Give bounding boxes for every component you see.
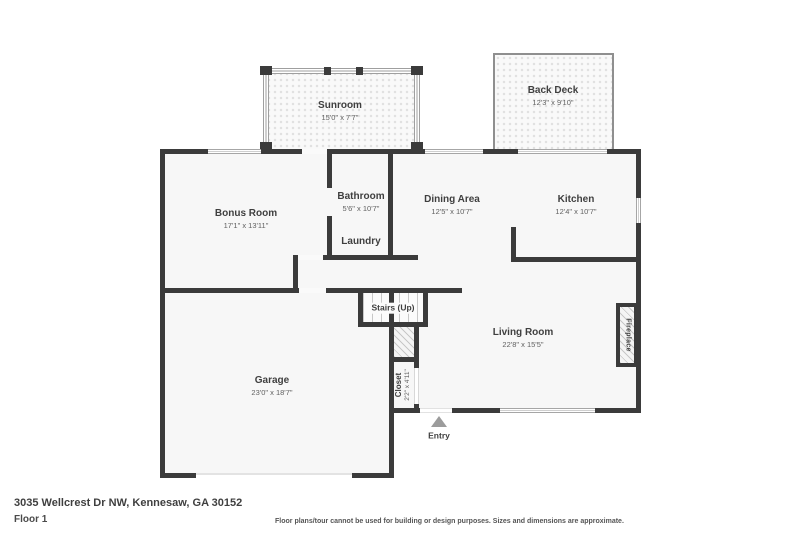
dining-window bbox=[425, 149, 483, 154]
sunroom-mullion-post bbox=[356, 67, 363, 75]
property-address: 3035 Wellcrest Dr NW, Kennesaw, GA 30152 bbox=[14, 497, 242, 509]
room-name: Dining Area bbox=[424, 194, 480, 207]
wall-bathroom-left-lower bbox=[327, 216, 332, 260]
room-dims: 17'1" x 13'11" bbox=[215, 221, 277, 230]
entry-arrow-icon bbox=[431, 416, 447, 427]
wall-bathroom-left-upper bbox=[327, 152, 332, 188]
room-name: Back Deck bbox=[528, 85, 579, 98]
room-dims: 5'6" x 10'7" bbox=[337, 204, 384, 213]
room-dims: 15'0" x 7'7" bbox=[318, 113, 362, 122]
room-label-garage: Garage 23'0" x 18'7" bbox=[251, 375, 292, 397]
sunroom-corner-post bbox=[411, 142, 423, 152]
wall-closet-right-upper bbox=[414, 322, 419, 368]
wall-left bbox=[160, 149, 165, 478]
wall-stairs-right bbox=[423, 293, 428, 327]
room-dims: 12'3" x 9'10" bbox=[528, 98, 579, 107]
room-label-fireplace: Fireplace bbox=[623, 318, 632, 351]
entry-door-opening bbox=[420, 408, 452, 413]
living-room-window bbox=[500, 408, 595, 413]
room-name: Living Room bbox=[493, 327, 554, 340]
room-name: Bonus Room bbox=[215, 208, 277, 221]
room-label-sunroom: Sunroom 15'0" x 7'7" bbox=[318, 100, 362, 122]
room-label-closet: Closet 2'2" x 4'11" bbox=[394, 369, 412, 401]
room-dims: 2'2" x 4'11" bbox=[404, 369, 412, 401]
room-label-laundry: Laundry bbox=[341, 236, 380, 249]
hall-door-opening-upper bbox=[298, 255, 323, 260]
room-name: Stairs (Up) bbox=[370, 303, 417, 314]
sunroom-mullion-post bbox=[324, 67, 331, 75]
room-name: Sunroom bbox=[318, 100, 362, 113]
closet-door-opening bbox=[414, 368, 419, 404]
under-stairs-hatch bbox=[394, 327, 414, 357]
room-label-stairs: Stairs (Up) bbox=[370, 303, 417, 314]
bonus-room-window bbox=[208, 149, 261, 154]
kitchen-window bbox=[636, 198, 641, 223]
deck-patio-door bbox=[518, 149, 607, 154]
hall-door-opening-lower bbox=[299, 288, 326, 293]
floor-plan-canvas: Sunroom 15'0" x 7'7" Back Deck 12'3" x 9… bbox=[0, 0, 800, 533]
room-dims: 23'0" x 18'7" bbox=[251, 388, 292, 397]
sunroom-corner-post bbox=[260, 142, 272, 152]
room-name: Kitchen bbox=[555, 194, 596, 207]
disclaimer-text: Floor plans/tour cannot be used for buil… bbox=[275, 518, 624, 525]
garage-floor-fill bbox=[160, 413, 394, 478]
sunroom-window-wall-right bbox=[414, 68, 420, 152]
wall-closet-right-lower bbox=[414, 404, 419, 413]
room-name: Entry bbox=[428, 431, 450, 442]
room-dims: 12'5" x 10'7" bbox=[424, 207, 480, 216]
sunroom-corner-post bbox=[260, 66, 272, 75]
room-name: Closet bbox=[394, 369, 404, 401]
room-dims: 22'8" x 15'5" bbox=[493, 340, 554, 349]
room-label-dining-area: Dining Area 12'5" x 10'7" bbox=[424, 194, 480, 216]
room-label-back-deck: Back Deck 12'3" x 9'10" bbox=[528, 85, 579, 107]
wall-laundry-bottom bbox=[323, 255, 418, 260]
wall-garage-top-right bbox=[326, 288, 462, 293]
room-label-entry: Entry bbox=[428, 431, 450, 442]
room-dims: 12'4" x 10'7" bbox=[555, 207, 596, 216]
room-label-bathroom: Bathroom 5'6" x 10'7" bbox=[337, 191, 384, 213]
wall-garage-top-left bbox=[160, 288, 299, 293]
garage-door-opening bbox=[196, 473, 352, 478]
sunroom-corner-post bbox=[411, 66, 423, 75]
sunroom-doorway-opening bbox=[302, 149, 327, 154]
sunroom-window-wall-top bbox=[263, 68, 420, 74]
floor-label: Floor 1 bbox=[14, 514, 47, 525]
room-name: Laundry bbox=[341, 236, 380, 249]
room-name: Fireplace bbox=[623, 318, 632, 351]
wall-kitchen-horizontal bbox=[511, 257, 641, 262]
sunroom-window-wall-left bbox=[263, 68, 269, 152]
room-label-kitchen: Kitchen 12'4" x 10'7" bbox=[555, 194, 596, 216]
room-label-bonus-room: Bonus Room 17'1" x 13'11" bbox=[215, 208, 277, 230]
wall-bathroom-right bbox=[388, 152, 393, 260]
room-name: Bathroom bbox=[337, 191, 384, 204]
room-name: Garage bbox=[251, 375, 292, 388]
wall-right bbox=[636, 149, 641, 413]
room-label-living-room: Living Room 22'8" x 15'5" bbox=[493, 327, 554, 349]
